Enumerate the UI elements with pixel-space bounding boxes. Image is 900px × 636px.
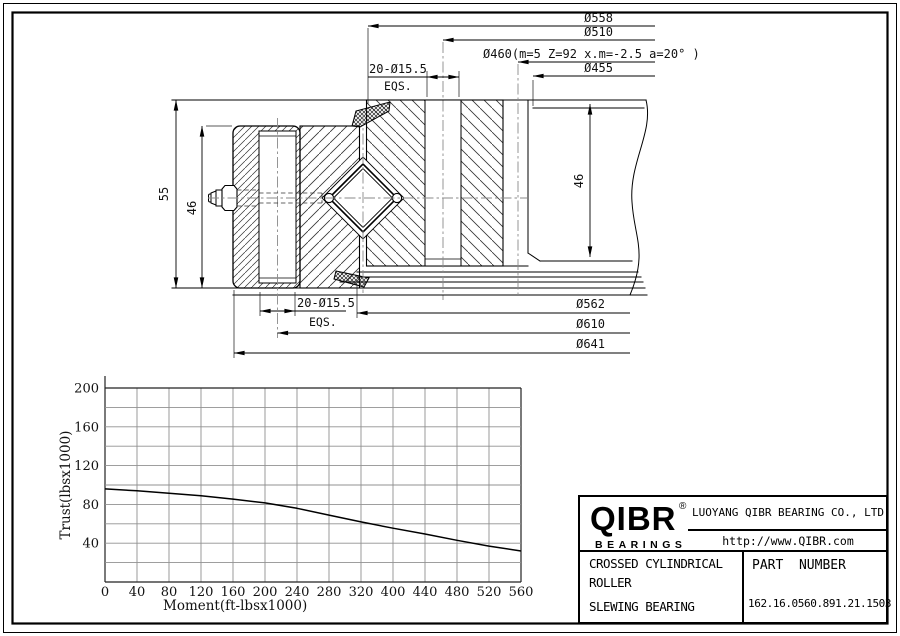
titleblock-divider-column <box>742 550 744 622</box>
x-tick-label: 480 <box>445 585 470 600</box>
product-name-line3: SLEWING BEARING <box>589 599 694 614</box>
company-name: LUOYANG QIBR BEARING CO., LTD <box>690 506 886 519</box>
chart-plot-area: 0408012016020024028032040044048052056020… <box>74 382 533 601</box>
y-tick-label: 200 <box>74 382 99 397</box>
hole-callout-top-note: EQS. <box>384 79 412 93</box>
y-tick-label: 120 <box>74 459 99 474</box>
x-tick-label: 520 <box>477 585 502 600</box>
company-website: http://www.QIBR.com <box>690 534 886 548</box>
x-tick-label: 40 <box>129 585 146 600</box>
chart-y-axis-title: Trust(lbsx1000) <box>58 431 74 540</box>
x-tick-label: 560 <box>509 585 534 600</box>
company-logo: QIBR <box>590 502 677 535</box>
part-number-value: 162.16.0560.891.21.1503 <box>748 597 891 610</box>
hole-callout-bottom: 20-Ø15.5 <box>297 296 355 310</box>
dim-bolt-circle-510: Ø510 <box>584 25 613 39</box>
dim-562: Ø562 <box>576 297 605 311</box>
capacity-chart: 0408012016020024028032040044048052056020… <box>58 376 533 614</box>
dim-height-55: 55 <box>157 187 171 201</box>
bearing-section-view <box>172 100 648 295</box>
part-number-label: PART NUMBER <box>752 558 846 573</box>
dim-outer-bolt-circle-558: Ø558 <box>584 11 613 25</box>
dim-455: Ø455 <box>584 61 613 75</box>
y-tick-label: 160 <box>74 420 99 435</box>
x-tick-label: 320 <box>349 585 374 600</box>
chart-x-axis-title: Moment(ft-lbsx1000) <box>163 598 307 614</box>
hole-callout-bottom-note: EQS. <box>309 315 337 329</box>
x-tick-label: 440 <box>413 585 438 600</box>
dim-610: Ø610 <box>576 317 605 331</box>
title-block: QIBR ® BEARINGS LUOYANG QIBR BEARING CO.… <box>578 495 888 624</box>
product-name-line2: ROLLER <box>589 575 631 590</box>
titleblock-divider-row <box>580 550 886 552</box>
dim-height-46-right: 46 <box>572 174 586 188</box>
x-tick-label: 400 <box>381 585 406 600</box>
product-name-line1: CROSSED CYLINDRICAL <box>589 556 723 571</box>
dim-641: Ø641 <box>576 337 605 351</box>
y-tick-label: 40 <box>82 537 99 552</box>
dim-gear-460: Ø460(m=5 Z=92 x.m=-2.5 a=20° ) <box>483 47 700 61</box>
hole-callout-top: 20-Ø15.5 <box>369 62 427 76</box>
y-tick-label: 80 <box>82 498 99 513</box>
dim-height-46-left: 46 <box>185 201 199 215</box>
x-tick-label: 0 <box>101 585 109 600</box>
datasheet-page: Ø558 Ø510 Ø460(m=5 Z=92 x.m=-2.5 a=20° )… <box>0 0 900 636</box>
x-tick-label: 280 <box>317 585 342 600</box>
registered-trademark-icon: ® <box>679 501 686 512</box>
chamfer-edge <box>528 253 540 261</box>
titleblock-divider-company <box>688 529 886 531</box>
capacity-curve <box>105 489 521 551</box>
break-line <box>630 100 648 295</box>
